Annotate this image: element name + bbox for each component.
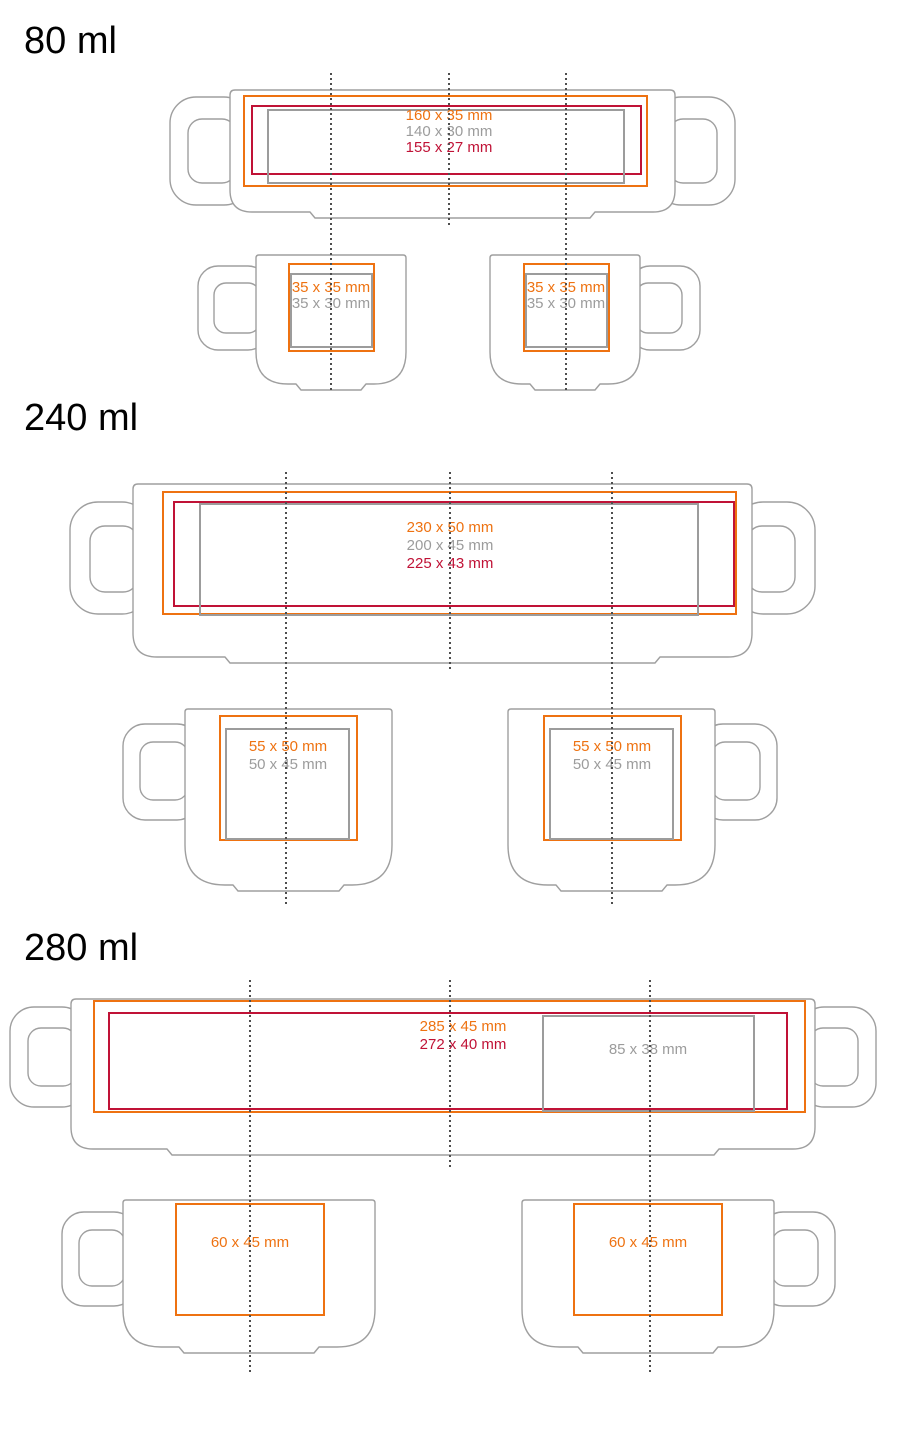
center-guide-line xyxy=(449,472,451,671)
print-area-labels-280ml-mug: 285 x 45 mm 272 x 40 mm xyxy=(420,1018,507,1054)
print-area-label: 50 x 45 mm xyxy=(249,756,327,774)
print-area-label: 60 x 45 mm xyxy=(609,1234,687,1252)
print-area-label-gray-280ml-mug: 85 x 38 mm xyxy=(609,1041,687,1059)
section-title-240ml: 240 ml xyxy=(24,398,138,438)
center-guide-line xyxy=(565,73,567,393)
print-area-label: 285 x 45 mm xyxy=(420,1018,507,1036)
print-area-labels-240ml-cup-left: 55 x 50 mm 50 x 45 mm xyxy=(249,738,327,774)
center-guide-line xyxy=(249,980,251,1372)
print-area-labels-280ml-cup-right: 60 x 45 mm xyxy=(609,1234,687,1252)
center-guide-line xyxy=(649,980,651,1372)
center-guide-line xyxy=(285,472,287,905)
center-guide-line xyxy=(611,472,613,905)
center-guide-line xyxy=(449,980,451,1168)
section-title-280ml: 280 ml xyxy=(24,928,138,968)
print-area-spec-diagram: 80 ml 160 x 35 mm 140 x 30 mm 155 x 27 m… xyxy=(0,0,900,1452)
section-title-80ml: 80 ml xyxy=(24,21,117,61)
print-area-orange-280ml-cup-right xyxy=(573,1203,723,1316)
mug-outlines-layer xyxy=(0,0,900,1452)
print-area-label: 55 x 50 mm xyxy=(249,738,327,756)
print-area-label: 85 x 38 mm xyxy=(609,1041,687,1059)
center-guide-line xyxy=(448,73,450,227)
center-guide-line xyxy=(330,73,332,393)
print-area-label: 272 x 40 mm xyxy=(420,1036,507,1054)
